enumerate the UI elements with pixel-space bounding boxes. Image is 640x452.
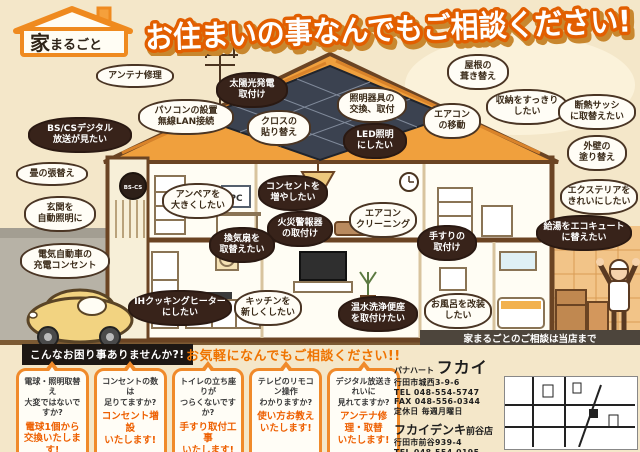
- store-name-sub: 前谷店: [466, 427, 493, 437]
- card-answer: コンセント増設 いたします!: [99, 411, 162, 447]
- callout-bubble: お風呂を改装 したい: [424, 293, 492, 329]
- store-detail-line: 行田市前谷939-4: [394, 438, 504, 448]
- store-detail-line: TEL 048-554-5747: [394, 388, 504, 398]
- callout-bubble: 給湯をエコキュート に替えたい: [536, 215, 632, 251]
- trouble-card: デジタル放送きれいに 見れてますか?アンテナ修理・取替 いたします!: [327, 368, 400, 452]
- callout-bubble: LED照明 にしたい: [343, 123, 407, 159]
- callout-bubble: パソコンの設置 無線LAN接続: [138, 99, 234, 135]
- callout-bubble: エクステリアを きれいにしたい: [560, 179, 638, 215]
- trouble-card: コンセントの数は 足りてますか?コンセント増設 いたします!: [94, 368, 167, 452]
- callout-bubble: エアコン の移動: [423, 103, 481, 139]
- callout-bubble: 換気扇を 取替えたい: [209, 227, 275, 263]
- card-question: トイレの立ち座りが つらくないですか?: [177, 377, 240, 419]
- trouble-cards: 電球・照明取替え 大変ではないですか?電球1個から 交換いたします!コンセントの…: [16, 368, 400, 452]
- callout-bubble: BS/CSデジタル 放送が見たい: [28, 117, 132, 153]
- callout-bubble: 屋根の 葺き替え: [447, 54, 509, 90]
- store-detail-line: 行田市城西3-9-6: [394, 378, 504, 388]
- card-question: テレビのリモコン操作 わかりますか?: [254, 377, 317, 408]
- card-answer: 電球1個から 交換いたします!: [21, 422, 84, 452]
- card-answer: アンテナ修理・取替 いたします!: [332, 411, 395, 447]
- flyer-page: BS-CS PC: [0, 0, 640, 452]
- card-answer: 手すり取付工事 いたします!: [177, 422, 240, 452]
- contact-info: パナハート フカイ行田市城西3-9-6TEL 048-554-5747FAX 0…: [394, 354, 504, 452]
- card-answer: 使い方お教え いたします!: [254, 411, 317, 435]
- store-block: フカイデンキ前谷店行田市前谷939-4TEL 048-554-0195FAX 0…: [394, 419, 504, 452]
- map-marker-icon: [589, 409, 598, 418]
- callout-bubble: 外壁の 塗り替え: [567, 135, 627, 171]
- store-detail-line: TEL 048-554-0195: [394, 448, 504, 452]
- store-brand: パナハート: [394, 366, 437, 375]
- callout-bubble: 手すりの 取付け: [417, 225, 477, 261]
- callout-bubble: クロスの 貼り替え: [247, 110, 311, 146]
- callout-bubble: 火災警報器 の取付け: [267, 211, 333, 247]
- callout-bubble: 照明器具の 交換、取付: [337, 87, 407, 123]
- callout-bubble: 収納をすっきり したい: [486, 89, 568, 125]
- map-illustration: [504, 376, 638, 450]
- callout-bubble: アンペアを 大きくしたい: [162, 183, 234, 219]
- store-detail-line: FAX 048-556-0344: [394, 397, 504, 407]
- callout-bubble: 玄関を 自動照明に: [24, 196, 96, 232]
- callout-bubble: IHクッキングヒーター にしたい: [128, 290, 232, 326]
- trouble-card: テレビのリモコン操作 わかりますか?使い方お教え いたします!: [249, 368, 322, 452]
- callout-bubble: キッチンを 新しくしたい: [234, 290, 302, 326]
- callout-bubble: 太陽光発電 取付け: [216, 72, 288, 108]
- trouble-card: トイレの立ち座りが つらくないですか?手すり取付工事 いたします!: [172, 368, 245, 452]
- page-title: お住まいの事なんでもご相談ください! お住まいの事なんでもご相談ください!: [132, 2, 640, 56]
- card-question: 電球・照明取替え 大変ではないですか?: [21, 377, 84, 419]
- store-name: フカイデンキ: [394, 423, 466, 437]
- consult-band: 家まるごとのご相談は当店まで: [420, 330, 640, 345]
- card-question: デジタル放送きれいに 見れてますか?: [332, 377, 395, 408]
- trouble-card: 電球・照明取替え 大変ではないですか?電球1個から 交換いたします!: [16, 368, 89, 452]
- card-question: コンセントの数は 足りてますか?: [99, 377, 162, 408]
- store-block: パナハート フカイ行田市城西3-9-6TEL 048-554-5747FAX 0…: [394, 354, 504, 416]
- store-name: フカイ: [437, 358, 488, 377]
- store-logo: 家まるごと: [8, 4, 138, 58]
- callout-bubble: 温水洗浄便座 を取付けたい: [338, 296, 418, 332]
- callout-bubble: 畳の張替え: [16, 162, 88, 186]
- callout-bubble: 断熱サッシ に取替えたい: [558, 94, 636, 130]
- callout-bubble: エアコン クリーニング: [349, 202, 417, 238]
- store-detail-line: 定休日 毎週月曜日: [394, 407, 504, 417]
- callout-bubble: コンセントを 増やしたい: [258, 175, 328, 211]
- callout-bubble: アンテナ修理: [96, 64, 174, 88]
- callout-bubble: 電気自動車の 充電コンセント: [20, 243, 110, 279]
